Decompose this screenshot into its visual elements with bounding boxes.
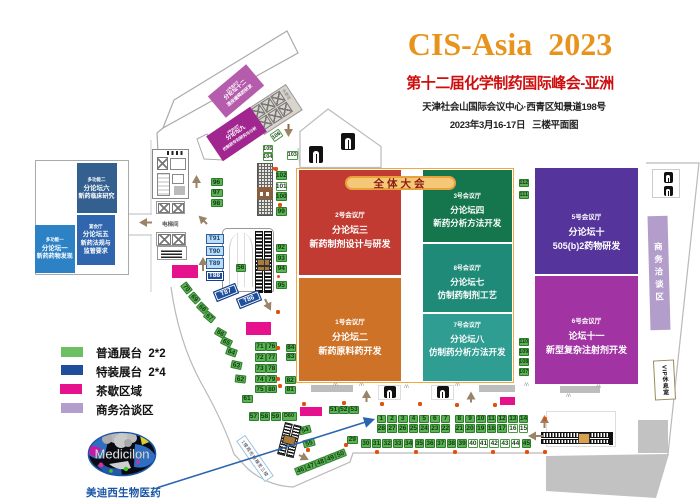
svg-text:Medicilon: Medicilon (95, 446, 150, 461)
